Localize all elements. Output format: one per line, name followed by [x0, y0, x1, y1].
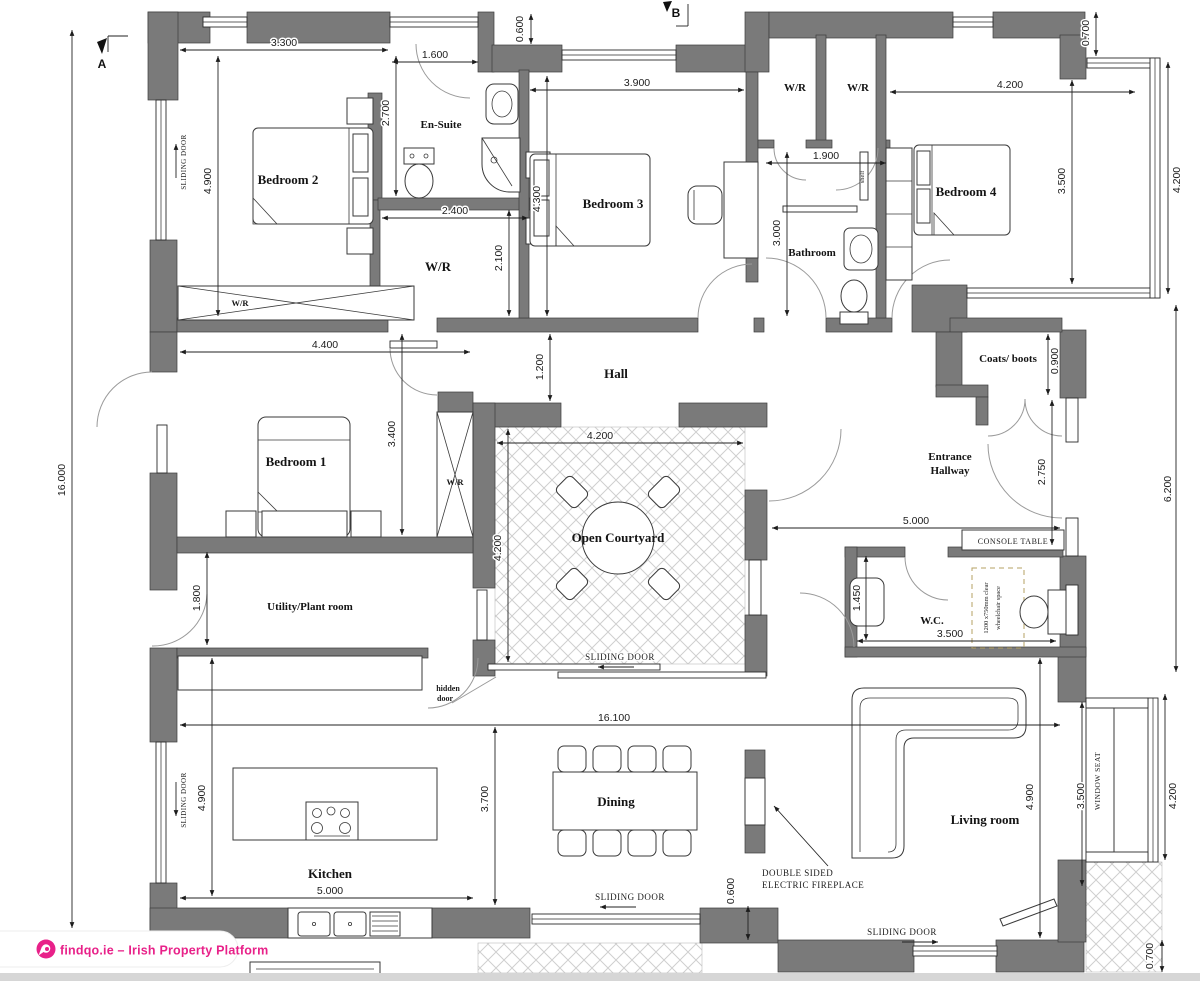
bed-icon [226, 417, 381, 537]
svg-text:4.300: 4.300 [531, 186, 543, 212]
svg-text:4.900: 4.900 [1024, 784, 1036, 810]
coats-door-left-arc [988, 399, 1025, 436]
desk-icon [724, 162, 758, 258]
room-label-ensuite: En-Suite [421, 119, 462, 131]
room-label-coats: Coats/ boots [979, 353, 1037, 365]
svg-text:4.200: 4.200 [492, 535, 504, 561]
svg-text:3.000: 3.000 [771, 220, 783, 246]
svg-text:4.200: 4.200 [997, 79, 1023, 91]
label-wr-closet-left: W/R [784, 82, 807, 94]
label-wr-corridor: W/R [425, 259, 452, 274]
label-wheelchair-1: 1200 x750mm clear [983, 582, 990, 634]
wc-door-arc [905, 557, 948, 600]
svg-text:4.900: 4.900 [196, 785, 208, 811]
watermark-badge[interactable]: findqo.ie – Irish Property Platform [0, 931, 268, 967]
fireplace-icon [745, 778, 765, 825]
badge-label: findqo.ie – Irish Property Platform [60, 944, 268, 958]
svg-text:1.600: 1.600 [422, 49, 448, 61]
dim: 3.000 [771, 152, 787, 316]
svg-text:1.200: 1.200 [534, 354, 546, 380]
svg-text:4.900: 4.900 [202, 168, 214, 194]
dim: 4.200 [890, 79, 1135, 92]
label-sliding-door-left-top: SLIDING DOOR [180, 134, 188, 190]
floorplan-page: 16.000 3.300 0.600 1.600 2.700 4.900 3.9… [0, 0, 1200, 981]
dim: 3.900 [530, 77, 744, 90]
room-label-entrance-2: Hallway [930, 465, 970, 477]
dim: 4.900 [202, 56, 218, 316]
label-sliding-door-dining: SLIDING DOOR [595, 892, 665, 902]
svg-text:0.600: 0.600 [514, 16, 526, 42]
sofa-icon [852, 688, 1026, 858]
svg-text:0.900: 0.900 [1049, 348, 1061, 374]
label-hidden-door-1: hidden [436, 684, 460, 693]
svg-text:16.000: 16.000 [56, 464, 68, 496]
svg-text:4.200: 4.200 [1171, 167, 1183, 193]
svg-text:6.200: 6.200 [1162, 476, 1174, 502]
dim: 4.200 [1165, 694, 1179, 860]
svg-text:2.100: 2.100 [493, 245, 505, 271]
dim: 3.500 [1075, 702, 1087, 886]
svg-text:1.800: 1.800 [191, 585, 203, 611]
dim: 0.900 [1048, 334, 1061, 395]
wardrobe-icon [178, 286, 414, 320]
svg-text:3.700: 3.700 [479, 786, 491, 812]
label-hidden-door-2: door [437, 694, 453, 703]
svg-text:A: A [98, 57, 107, 71]
dim: 3.500 [857, 628, 1056, 641]
svg-text:3.500: 3.500 [1075, 783, 1087, 809]
svg-text:0.600: 0.600 [725, 878, 737, 904]
hob-icon [306, 802, 358, 840]
toilet-icon [1020, 590, 1066, 634]
sink-icon [486, 84, 518, 124]
svg-text:4.400: 4.400 [312, 339, 338, 351]
svg-text:3.400: 3.400 [386, 421, 398, 447]
svg-text:2.700: 2.700 [380, 100, 392, 126]
kitchen-island-icon [233, 768, 437, 840]
dim: 2.700 [380, 56, 396, 196]
footer-strip [0, 973, 1200, 981]
sink-counter-icon [288, 908, 432, 938]
label-shelf: shelf [859, 170, 866, 183]
toilet-icon [404, 148, 434, 198]
dim: 6.200 [1162, 305, 1176, 672]
room-label-utility: Utility/Plant room [267, 601, 353, 613]
dim: 2.100 [493, 210, 509, 316]
room-label-bedroom1: Bedroom 1 [266, 454, 327, 469]
kitchen-counter [178, 656, 422, 690]
front-door-arc [988, 444, 1062, 518]
room-label-entrance-1: Entrance [928, 451, 972, 463]
room-label-courtyard: Open Courtyard [572, 530, 666, 545]
bathroom-shelf [783, 206, 857, 212]
dim: 0.600 [514, 14, 531, 44]
label-fireplace-1: DOUBLE SIDED [762, 868, 833, 878]
bathroom-corridor-door-arc [766, 258, 826, 318]
findqo-logo-icon [37, 940, 56, 959]
wr-closet-right-door-arc [836, 148, 878, 190]
coats-door-right-arc [1025, 399, 1062, 436]
dim: 1.600 [392, 49, 478, 62]
svg-text:0.700: 0.700 [1144, 943, 1156, 969]
svg-text:5.000: 5.000 [317, 885, 343, 897]
label-console-table: CONSOLE TABLE [978, 537, 1048, 546]
svg-text:0.700: 0.700 [1080, 20, 1092, 46]
shower-icon [482, 138, 520, 192]
hidden-door-arc [428, 658, 478, 708]
svg-text:16.100: 16.100 [598, 712, 630, 724]
dim: 1.200 [534, 334, 550, 401]
label-window-seat: WINDOW SEAT [1093, 752, 1102, 810]
room-label-hall: Hall [604, 366, 628, 381]
section-marker-b: B [663, 1, 688, 26]
svg-text:2.400: 2.400 [442, 205, 468, 217]
svg-text:5.000: 5.000 [903, 515, 929, 527]
bedroom1-door-arc [390, 348, 437, 395]
svg-text:3.500: 3.500 [937, 628, 963, 640]
svg-text:3.500: 3.500 [1056, 168, 1068, 194]
room-label-wc: W.C. [920, 615, 944, 627]
dim: 4.200 [1168, 62, 1183, 294]
svg-text:1.450: 1.450 [851, 585, 863, 611]
tv-icon [1000, 899, 1057, 926]
svg-text:B: B [672, 6, 681, 20]
svg-text:3.900: 3.900 [624, 77, 650, 89]
room-label-kitchen: Kitchen [308, 866, 353, 881]
dim: 3.700 [479, 727, 495, 905]
dim: 5.000 [180, 885, 473, 898]
dim: 4.900 [196, 658, 212, 896]
label-sliding-door-left-bottom: SLIDING DOOR [180, 772, 188, 828]
hallway-door-arc [769, 429, 841, 501]
dim: 5.000 [772, 515, 1060, 528]
svg-text:3.300: 3.300 [271, 37, 297, 49]
floor-plan-drawing: 16.000 3.300 0.600 1.600 2.700 4.900 3.9… [0, 0, 1200, 981]
dim: 3.500 [1056, 80, 1072, 284]
toilet-icon [840, 280, 868, 324]
closet-icon [886, 148, 912, 280]
section-marker-a: A [97, 36, 128, 71]
svg-text:2.750: 2.750 [1036, 459, 1048, 485]
wr-closet-left-door-arc [774, 148, 806, 180]
label-wheelchair-2: wheelchair space [995, 586, 1002, 630]
bedroom3-door-arc [698, 264, 752, 318]
room-label-bedroom3: Bedroom 3 [583, 196, 644, 211]
wardrobe-icon [437, 412, 473, 537]
label-wr-bedroom2: W/R [232, 298, 250, 308]
label-wr-closet-right: W/R [847, 82, 870, 94]
dim-overall-height: 16.000 [56, 30, 72, 928]
svg-text:4.200: 4.200 [1167, 783, 1179, 809]
room-label-bathroom: Bathroom [788, 247, 835, 259]
svg-text:1.900: 1.900 [813, 150, 839, 162]
room-label-bedroom4: Bedroom 4 [936, 184, 997, 199]
label-sliding-door-courtyard: SLIDING DOOR [585, 652, 655, 662]
label-sliding-door-living: SLIDING DOOR [867, 927, 937, 937]
courtyard-sliding-door [488, 664, 660, 670]
room-label-living: Living room [951, 812, 1020, 827]
dim: 3.400 [386, 334, 402, 535]
bedroom1-ext-door-arc [97, 372, 152, 427]
sink-icon [844, 228, 878, 270]
dim: 2.750 [1036, 400, 1052, 545]
chair-icon [688, 186, 722, 224]
label-wr-bedroom1: W/R [447, 477, 465, 487]
svg-text:4.200: 4.200 [587, 430, 613, 442]
room-label-dining: Dining [597, 794, 635, 809]
room-label-bedroom2: Bedroom 2 [258, 172, 319, 187]
patio-hatch-south [478, 943, 702, 973]
label-fireplace-2: ELECTRIC FIREPLACE [762, 880, 864, 890]
dim: 1.800 [191, 552, 207, 645]
